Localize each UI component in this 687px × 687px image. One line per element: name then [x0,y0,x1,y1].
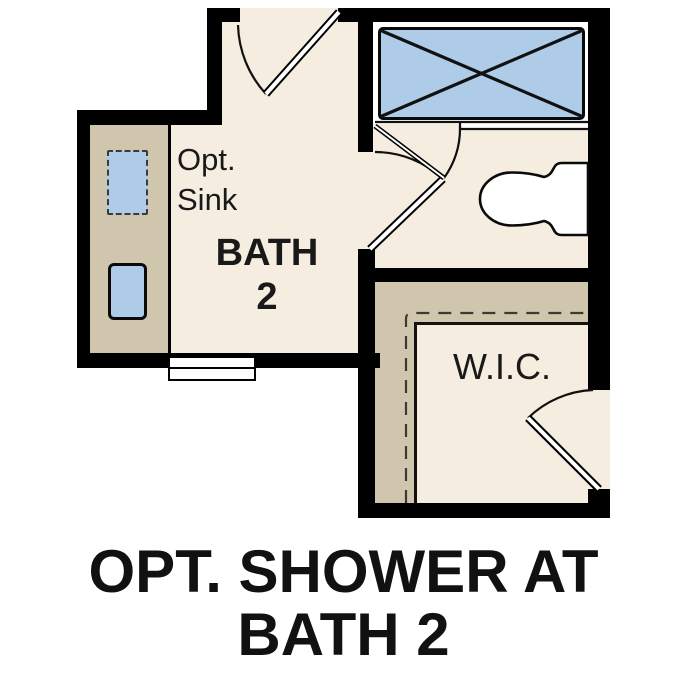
wall-bath-toilet-divider [358,8,373,152]
wic-room-label: W.I.C. [422,349,582,385]
plan-caption: OPT. SHOWER AT BATH 2 [0,540,687,666]
window-icon [168,356,256,381]
floorplan: Opt. Sink BATH 2 W.I.C. OPT. SHOWER AT B… [0,0,687,687]
wall-toilet-bottom [358,268,610,282]
wall-wic-bottom [358,503,610,518]
wall-west [77,110,90,368]
wall-entry-left [207,8,222,125]
bath-room-number: 2 [192,278,342,316]
plan-caption-line1: OPT. SHOWER AT [0,540,687,603]
wall-top-right [338,8,610,22]
window-pane [170,358,254,369]
wall-door-hinge-stub [358,249,375,269]
wic-doorway-floor [588,390,610,489]
vanity-counter-edge [168,125,171,353]
wall-vanity-top [77,110,222,125]
shower-glass-strip [460,121,588,130]
bath-entry-floor [222,8,358,125]
sink-icon [108,263,147,320]
optional-sink-icon [107,150,148,215]
bath-room-label: BATH [192,234,342,272]
wall-east-upper [588,8,610,390]
shower-icon [378,27,585,120]
opt-sink-label-line2: Sink [177,184,237,215]
plan-caption-line2: BATH 2 [0,603,687,666]
wall-wic-left [358,268,375,518]
opt-sink-label-line1: Opt. [177,144,236,175]
toilet-room-floor [373,124,588,268]
